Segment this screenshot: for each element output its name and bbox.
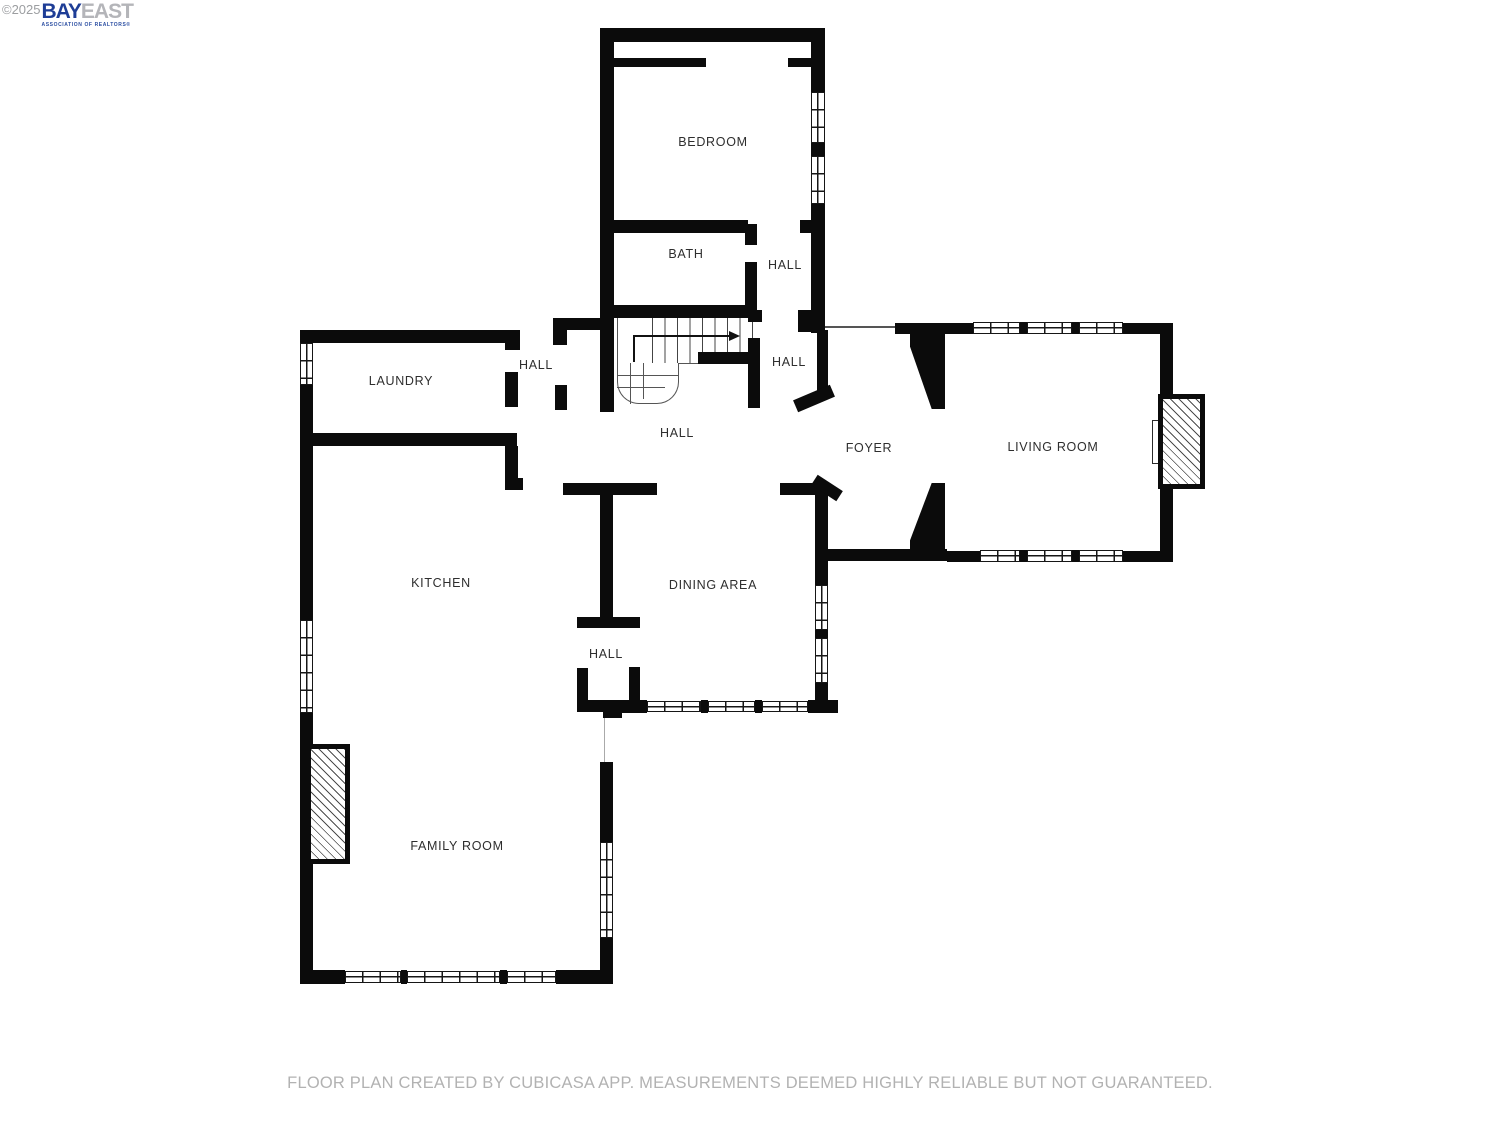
bayeast-logo: ©2025 BAYEAST ASSOCIATION OF REALTORS® xyxy=(2,2,133,28)
window-divider xyxy=(500,970,507,984)
wall xyxy=(600,762,613,842)
window xyxy=(815,638,828,683)
angled-wall xyxy=(910,333,945,409)
room-label-hall-kitchen: HALL xyxy=(589,647,623,661)
room-label-hall-stairs: HALL xyxy=(772,355,806,369)
wall xyxy=(800,220,825,233)
room-label-bath: BATH xyxy=(668,247,703,261)
room-label-living-room: LIVING ROOM xyxy=(1007,440,1098,454)
stair-tread xyxy=(617,375,679,376)
room-label-kitchen: KITCHEN xyxy=(411,576,471,590)
window xyxy=(600,842,613,938)
wall xyxy=(563,483,657,495)
window xyxy=(762,701,808,712)
window xyxy=(708,701,755,712)
window xyxy=(1079,322,1123,334)
stair-tread xyxy=(617,387,665,388)
window-divider xyxy=(701,700,708,713)
wall xyxy=(811,143,825,156)
wall xyxy=(815,487,828,557)
wall xyxy=(815,557,828,585)
angled-wall xyxy=(793,385,835,413)
window xyxy=(1027,550,1072,562)
brand-east: EAST xyxy=(81,0,133,23)
wall xyxy=(600,220,748,233)
wall xyxy=(505,330,520,350)
wall xyxy=(815,683,828,713)
window xyxy=(811,92,825,143)
wall xyxy=(553,318,600,330)
wall xyxy=(505,478,523,490)
room-label-hall-laundry: HALL xyxy=(519,358,553,372)
window-divider xyxy=(1072,322,1079,334)
bayeast-brand: BAYEAST ASSOCIATION OF REALTORS® xyxy=(42,2,133,28)
wall xyxy=(505,446,518,480)
angled-wall xyxy=(910,483,945,553)
front-door-opening xyxy=(820,326,896,328)
fireplace xyxy=(1158,394,1205,489)
stair-winder xyxy=(617,363,679,404)
wall xyxy=(748,310,762,322)
fireplace xyxy=(306,744,350,864)
window xyxy=(300,343,313,385)
wall xyxy=(745,233,757,245)
wall xyxy=(300,970,345,984)
window xyxy=(647,701,701,712)
room-label-family-room: FAMILY ROOM xyxy=(410,839,503,853)
wall xyxy=(947,551,980,562)
window-divider xyxy=(755,700,762,713)
room-label-hall-main: HALL xyxy=(660,426,694,440)
window-divider xyxy=(1072,550,1079,562)
floor-plan: ©2025 BAYEAST ASSOCIATION OF REALTORS® xyxy=(0,0,1500,1125)
window xyxy=(300,620,313,713)
window-divider xyxy=(1020,322,1027,334)
wall xyxy=(556,970,613,984)
wall xyxy=(895,323,973,334)
room-label-bedroom: BEDROOM xyxy=(678,135,748,149)
brand-bay: BAY xyxy=(42,0,81,23)
wall xyxy=(748,338,760,408)
room-label-dining-area: DINING AREA xyxy=(669,578,757,592)
wall xyxy=(300,330,510,343)
window-divider xyxy=(815,630,828,638)
copyright-text: ©2025 xyxy=(2,2,41,17)
stair-tread xyxy=(643,363,644,399)
room-label-laundry: LAUNDRY xyxy=(369,374,433,388)
wall xyxy=(300,385,313,620)
window-divider xyxy=(1020,550,1027,562)
stairs-arrowhead-icon xyxy=(729,331,740,341)
stair-edge xyxy=(617,318,618,364)
wall xyxy=(698,352,752,364)
closet-wall xyxy=(788,58,811,67)
wall xyxy=(577,617,640,628)
window xyxy=(1079,550,1123,562)
opening-line xyxy=(604,713,605,762)
wall xyxy=(1160,323,1173,398)
window xyxy=(507,971,556,983)
window xyxy=(980,550,1020,562)
window xyxy=(811,156,825,204)
wall xyxy=(613,700,647,713)
wall xyxy=(1123,551,1173,562)
wall xyxy=(600,28,825,42)
stairs-direction-arrow xyxy=(633,335,731,337)
window xyxy=(345,971,401,983)
closet-wall xyxy=(614,58,706,67)
wall xyxy=(600,495,613,618)
wall xyxy=(600,305,757,318)
wall xyxy=(505,372,518,407)
window xyxy=(1027,322,1072,334)
wall xyxy=(798,310,817,332)
wall xyxy=(300,330,313,343)
door-jamb xyxy=(555,385,567,410)
wall xyxy=(811,28,825,94)
brand-subtitle: ASSOCIATION OF REALTORS® xyxy=(42,22,133,28)
stair-tread xyxy=(630,363,631,404)
room-label-foyer: FOYER xyxy=(846,441,893,455)
wall xyxy=(300,433,517,446)
room-label-hall-bedroom: HALL xyxy=(768,258,802,272)
stairs-direction-arrow xyxy=(633,336,635,362)
window xyxy=(815,585,828,630)
window xyxy=(407,971,500,983)
disclaimer-caption: FLOOR PLAN CREATED BY CUBICASA APP. MEAS… xyxy=(0,1074,1500,1093)
window xyxy=(973,322,1020,334)
door-jamb xyxy=(746,224,757,233)
